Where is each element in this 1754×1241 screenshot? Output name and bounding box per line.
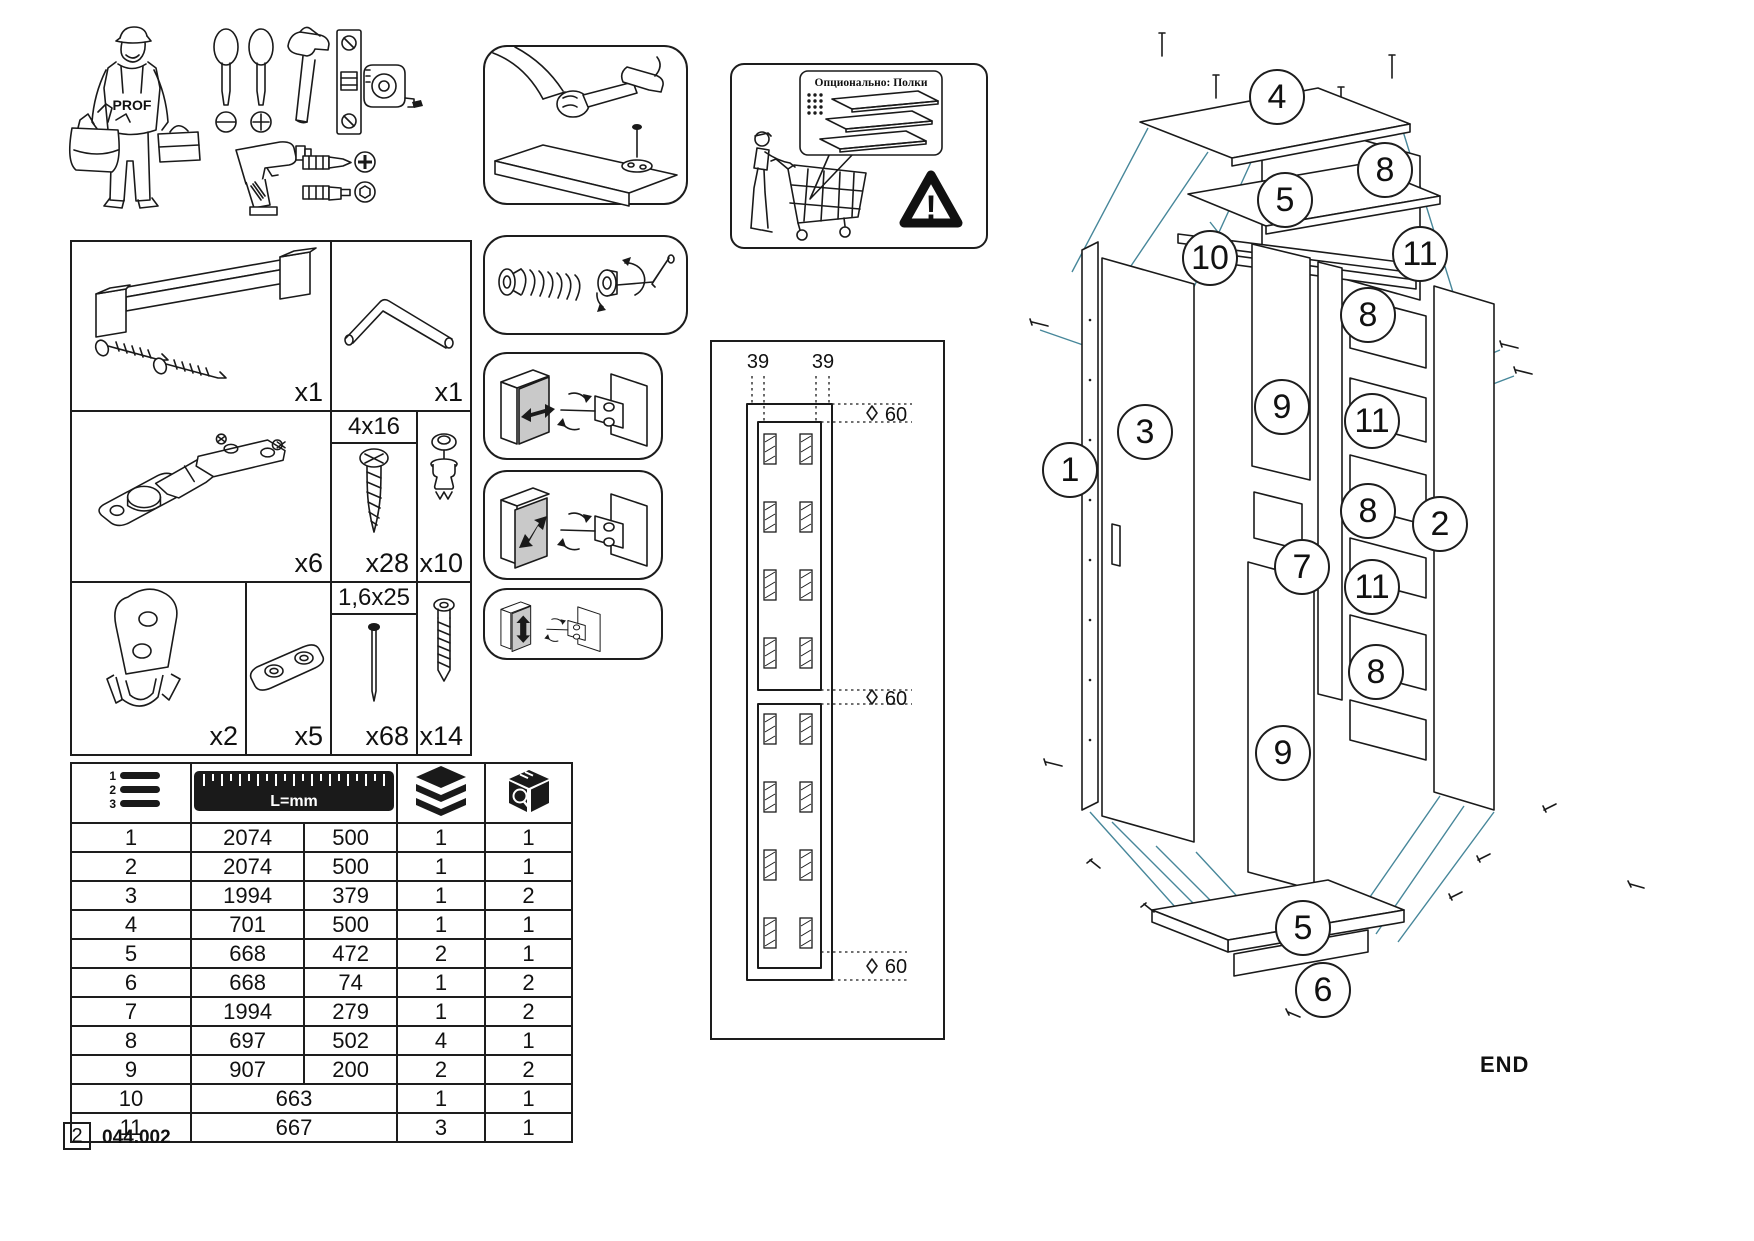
layers-icon [414, 764, 468, 818]
parts-table-row: 869750241 [71, 1026, 572, 1055]
parts-table-row: 1066311 [71, 1084, 572, 1113]
part-cell-allen-key: x1 [330, 240, 472, 412]
parts-table-cell: 2 [71, 852, 191, 881]
optional-shelves-label: Опционально: Полки [815, 77, 928, 89]
hinge-adjust-horizontal-illustration [485, 354, 660, 457]
parts-dimensions-table: 1 2 3 L=mm [70, 762, 573, 1143]
screwdriver-phillips-icon [249, 29, 273, 132]
parts-table-cell: 1 [485, 1113, 572, 1142]
hinge-drawing [72, 412, 330, 552]
parts-table-row: 990720022 [71, 1055, 572, 1084]
part-cell-cam-dowel: x10 [416, 410, 472, 583]
qty-label: x5 [294, 721, 323, 752]
screw-drawing [332, 444, 416, 556]
dim-60-bottom: 60 [885, 956, 907, 978]
part-cell-confirmat: x14 [416, 581, 472, 756]
clip-drawing [247, 583, 330, 725]
speech-bubble: Опционально: Полки [800, 71, 942, 199]
qty-label: x28 [365, 548, 409, 579]
screw-size-label: 4x16 [332, 412, 416, 444]
worker-figure: PROF [70, 27, 200, 208]
parts-table-cell: 1 [485, 939, 572, 968]
panel-hinge-adjust-depth [483, 470, 663, 580]
parts-table-cell: 1 [485, 852, 572, 881]
exploded-wardrobe-diagram [1020, 25, 1740, 1115]
svg-text:L=mm: L=mm [270, 793, 318, 810]
handle-screw [151, 356, 226, 378]
svg-text:2: 2 [109, 783, 116, 797]
panel-cam-screw [483, 235, 688, 335]
level-icon [337, 30, 361, 134]
assembly-instruction-page: PROF [0, 0, 1754, 1241]
parts-table-cell: 1 [397, 852, 485, 881]
qty-label: x1 [294, 377, 323, 408]
parts-table-cell: 279 [304, 997, 397, 1026]
parts-table-cell: 668 [191, 968, 304, 997]
rail-bracket-drawing [72, 583, 245, 725]
part-cell-bracket: x2 [70, 581, 247, 756]
parts-table-cell: 10 [71, 1084, 191, 1113]
drill-icon [236, 142, 311, 215]
parts-table-cell: 1 [397, 823, 485, 852]
package-box-icon [506, 768, 552, 814]
parts-table-cell: 2074 [191, 852, 304, 881]
qty-label: x68 [365, 721, 409, 752]
parts-table-cell: 2 [397, 939, 485, 968]
worker-and-tools-illustration: PROF [60, 10, 460, 215]
parts-table-cell: 2 [397, 1055, 485, 1084]
column-header-dimensions: L=mm [191, 763, 397, 823]
dim-39-left: 39 [747, 351, 769, 373]
allen-key-drawing [332, 242, 470, 382]
cam-screw-allen-illustration [485, 237, 685, 332]
nail-drawing [332, 615, 416, 727]
parts-table-cell: 500 [304, 852, 397, 881]
screwdriver-flat-icon [214, 29, 238, 132]
parts-table-cell: 668 [191, 939, 304, 968]
parts-table-cell: 4 [71, 910, 191, 939]
dim-60-top: 60 [885, 404, 907, 426]
vest-label: PROF [113, 97, 152, 113]
parts-table-cell: 1 [397, 968, 485, 997]
tape-measure-icon [364, 65, 423, 108]
parts-table-cell: 667 [191, 1113, 397, 1142]
parts-table-cell: 701 [191, 910, 304, 939]
parts-table-cell: 1 [71, 823, 191, 852]
parts-table-cell: 9 [71, 1055, 191, 1084]
handle-screw [93, 338, 168, 360]
parts-table-cell: 200 [304, 1055, 397, 1084]
end-label: END [1480, 1052, 1529, 1078]
parts-table-cell: 500 [304, 823, 397, 852]
qty-label: x2 [209, 721, 238, 752]
parts-table-row: 2207450011 [71, 852, 572, 881]
parts-table-cell: 1 [397, 997, 485, 1026]
parts-table-cell: 1 [397, 1084, 485, 1113]
parts-table-row: 66687412 [71, 968, 572, 997]
parts-table-row: 7199427912 [71, 997, 572, 1026]
panel-drilling-template: 39 39 60 60 60 [710, 340, 945, 1040]
column-header-quantity [397, 763, 485, 823]
part-cell-clip: x5 [245, 581, 332, 756]
document-code: 044.002 [102, 1127, 171, 1149]
shopping-cart [771, 159, 866, 240]
svg-text:3: 3 [109, 797, 116, 811]
parts-table-cell: 1 [397, 910, 485, 939]
shopper-figure [751, 132, 795, 232]
parts-table-cell: 1 [485, 1084, 572, 1113]
nail-size-label: 1,6x25 [332, 583, 416, 615]
parts-table-cell: 2 [485, 881, 572, 910]
parts-table-cell: 2 [485, 997, 572, 1026]
part-cell-hinge: x6 [70, 410, 332, 583]
page-number: 2 [71, 1125, 82, 1148]
parts-table-header-row: 1 2 3 L=mm [71, 763, 572, 823]
parts-table-cell: 1 [397, 881, 485, 910]
parts-table-cell: 8 [71, 1026, 191, 1055]
column-header-package [485, 763, 572, 823]
parts-table-row: 470150011 [71, 910, 572, 939]
part-cell-nail: 1,6x25 x68 [330, 581, 418, 756]
parts-table-cell: 1 [485, 1026, 572, 1055]
parts-table-cell: 4 [397, 1026, 485, 1055]
qty-label: x14 [419, 721, 463, 752]
panel-hinge-adjust-horizontal [483, 352, 663, 460]
parts-table-cell: 6 [71, 968, 191, 997]
parts-table-cell: 907 [191, 1055, 304, 1084]
parts-table-cell: 7 [71, 997, 191, 1026]
qty-label: x1 [434, 377, 463, 408]
qty-label: x10 [419, 548, 463, 579]
optional-shelves-illustration: Опционально: Полки [732, 65, 986, 247]
parts-table-cell: 500 [304, 910, 397, 939]
parts-table-cell: 5 [71, 939, 191, 968]
parts-table-row: 3199437912 [71, 881, 572, 910]
parts-table-cell: 2 [485, 1055, 572, 1084]
wardrobe-panels [1082, 88, 1494, 976]
drilling-template-diagram: 39 39 60 60 60 [712, 342, 943, 1038]
page-number-box: 2 [63, 1122, 91, 1150]
svg-text:1: 1 [109, 769, 116, 783]
parts-table-cell: 1994 [191, 881, 304, 910]
ruler-icon: L=mm [192, 766, 396, 816]
parts-table-cell: 697 [191, 1026, 304, 1055]
parts-table-cell: 74 [304, 968, 397, 997]
parts-table-cell: 3 [71, 881, 191, 910]
warning-triangle-icon: ! [904, 175, 958, 227]
parts-table-cell: 1 [485, 910, 572, 939]
hinge-adjust-depth-illustration [485, 472, 660, 577]
parts-table-row: 1207450011 [71, 823, 572, 852]
parts-table-row: 566847221 [71, 939, 572, 968]
hinge-adjust-vertical-illustration [485, 590, 660, 657]
hammer-icon [288, 27, 329, 122]
confirmat-screw-drawing [418, 583, 470, 725]
parts-table-cell: 3 [397, 1113, 485, 1142]
part-cell-handle: x1 [70, 240, 332, 412]
dim-60-middle: 60 [885, 688, 907, 710]
part-cell-screw-4x16: 4x16 x28 [330, 410, 418, 583]
column-header-item-number: 1 2 3 [71, 763, 191, 823]
parts-table-cell: 472 [304, 939, 397, 968]
hammer-nail-illustration [485, 47, 685, 202]
panel-optional-shelves: Опционально: Полки [730, 63, 988, 249]
dim-39-right: 39 [812, 351, 834, 373]
parts-table-cell: 663 [191, 1084, 397, 1113]
parts-table-cell: 379 [304, 881, 397, 910]
parts-table-cell: 2074 [191, 823, 304, 852]
handle-drawing [72, 242, 330, 382]
panel-hinge-adjust-vertical [483, 588, 663, 660]
bit-phillips-icon [303, 152, 375, 172]
parts-table-cell: 502 [304, 1026, 397, 1055]
bit-hex-icon [303, 182, 375, 202]
parts-table-cell: 2 [485, 968, 572, 997]
cam-dowel-drawing [418, 412, 470, 552]
numbered-list-icon: 1 2 3 [96, 769, 166, 813]
qty-label: x6 [294, 548, 323, 579]
warning-mark: ! [925, 189, 936, 227]
panel-hammer-nail [483, 45, 688, 205]
parts-table-cell: 1 [485, 823, 572, 852]
parts-table-cell: 1994 [191, 997, 304, 1026]
